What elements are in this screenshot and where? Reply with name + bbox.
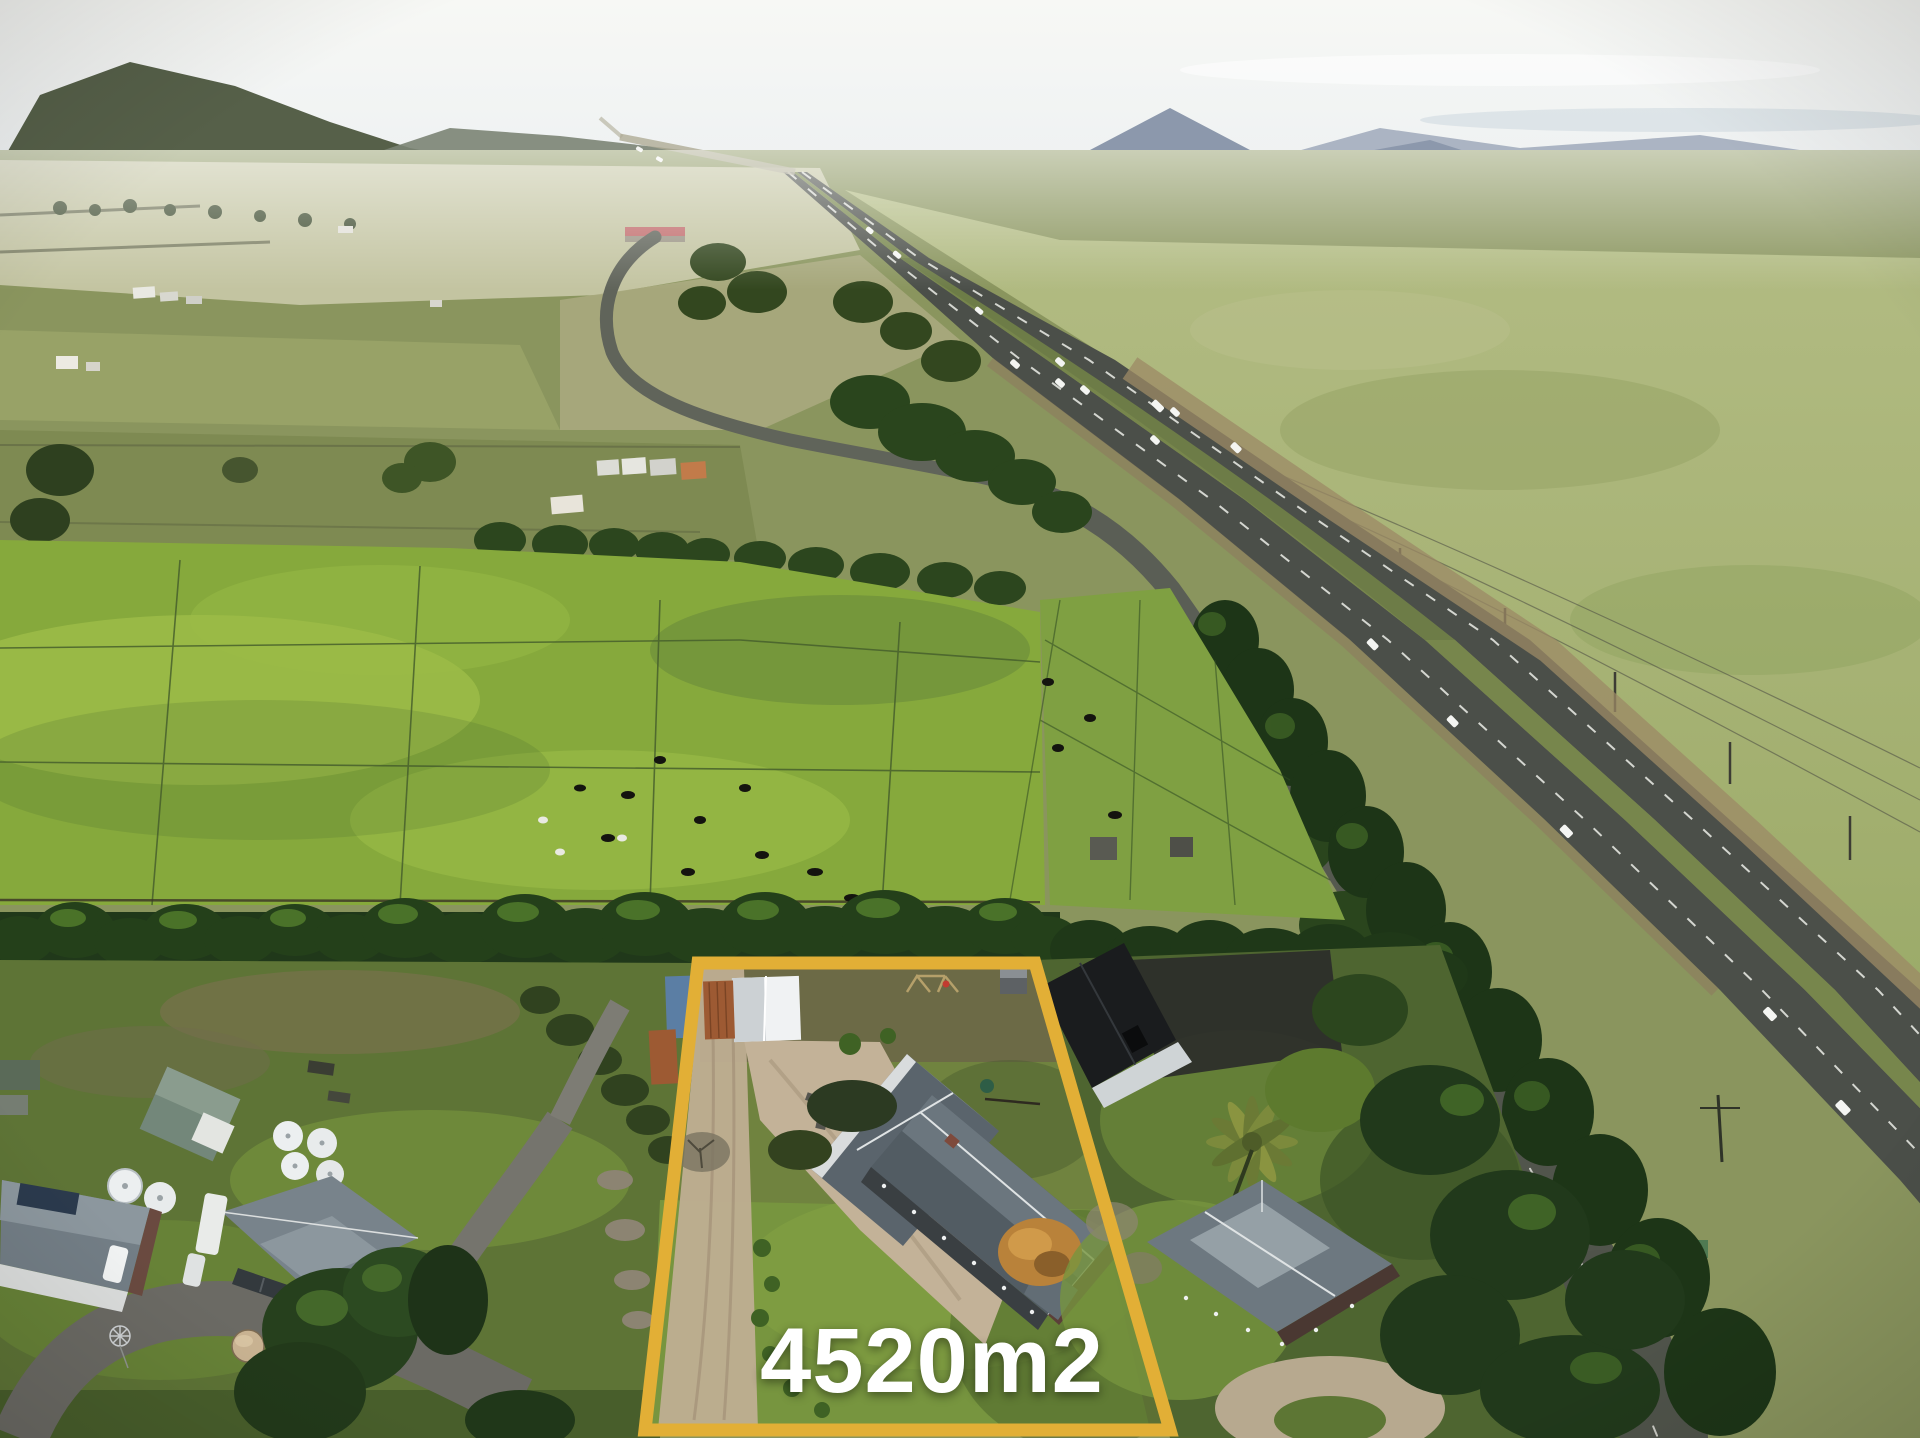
aerial-photo: 4520m2 [0,0,1920,1438]
area-label: 4520m2 [760,1310,1104,1412]
vignette [0,0,1920,1438]
aerial-photo-canvas: 4520m2 [0,0,1920,1438]
